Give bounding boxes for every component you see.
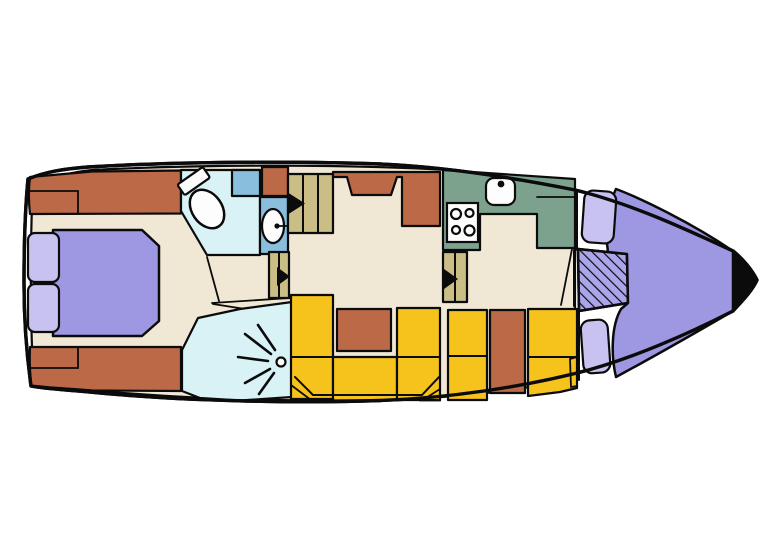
sink-drain xyxy=(498,181,505,188)
aft-double-bed xyxy=(53,230,159,336)
aft-pillow-top xyxy=(28,233,59,282)
boat-floor-plan xyxy=(0,0,780,551)
sideboard-block xyxy=(262,167,288,196)
aft-storage-band-bottom xyxy=(30,347,181,391)
vanity-shelf xyxy=(232,170,260,196)
side-table xyxy=(490,310,525,393)
aft-pillow-bottom xyxy=(28,284,59,332)
bow-locker-hatched xyxy=(578,249,628,311)
shower-room-floor xyxy=(182,302,292,401)
dinette-bench-right xyxy=(397,308,440,400)
bow-tip xyxy=(733,249,758,312)
dinette-table xyxy=(337,309,391,351)
stove xyxy=(447,203,478,242)
aft-storage-band-top xyxy=(29,171,181,215)
dinette-bench-bottom xyxy=(333,357,397,401)
floor-plan-canvas xyxy=(0,0,780,551)
dinette-bench-left xyxy=(291,295,333,399)
